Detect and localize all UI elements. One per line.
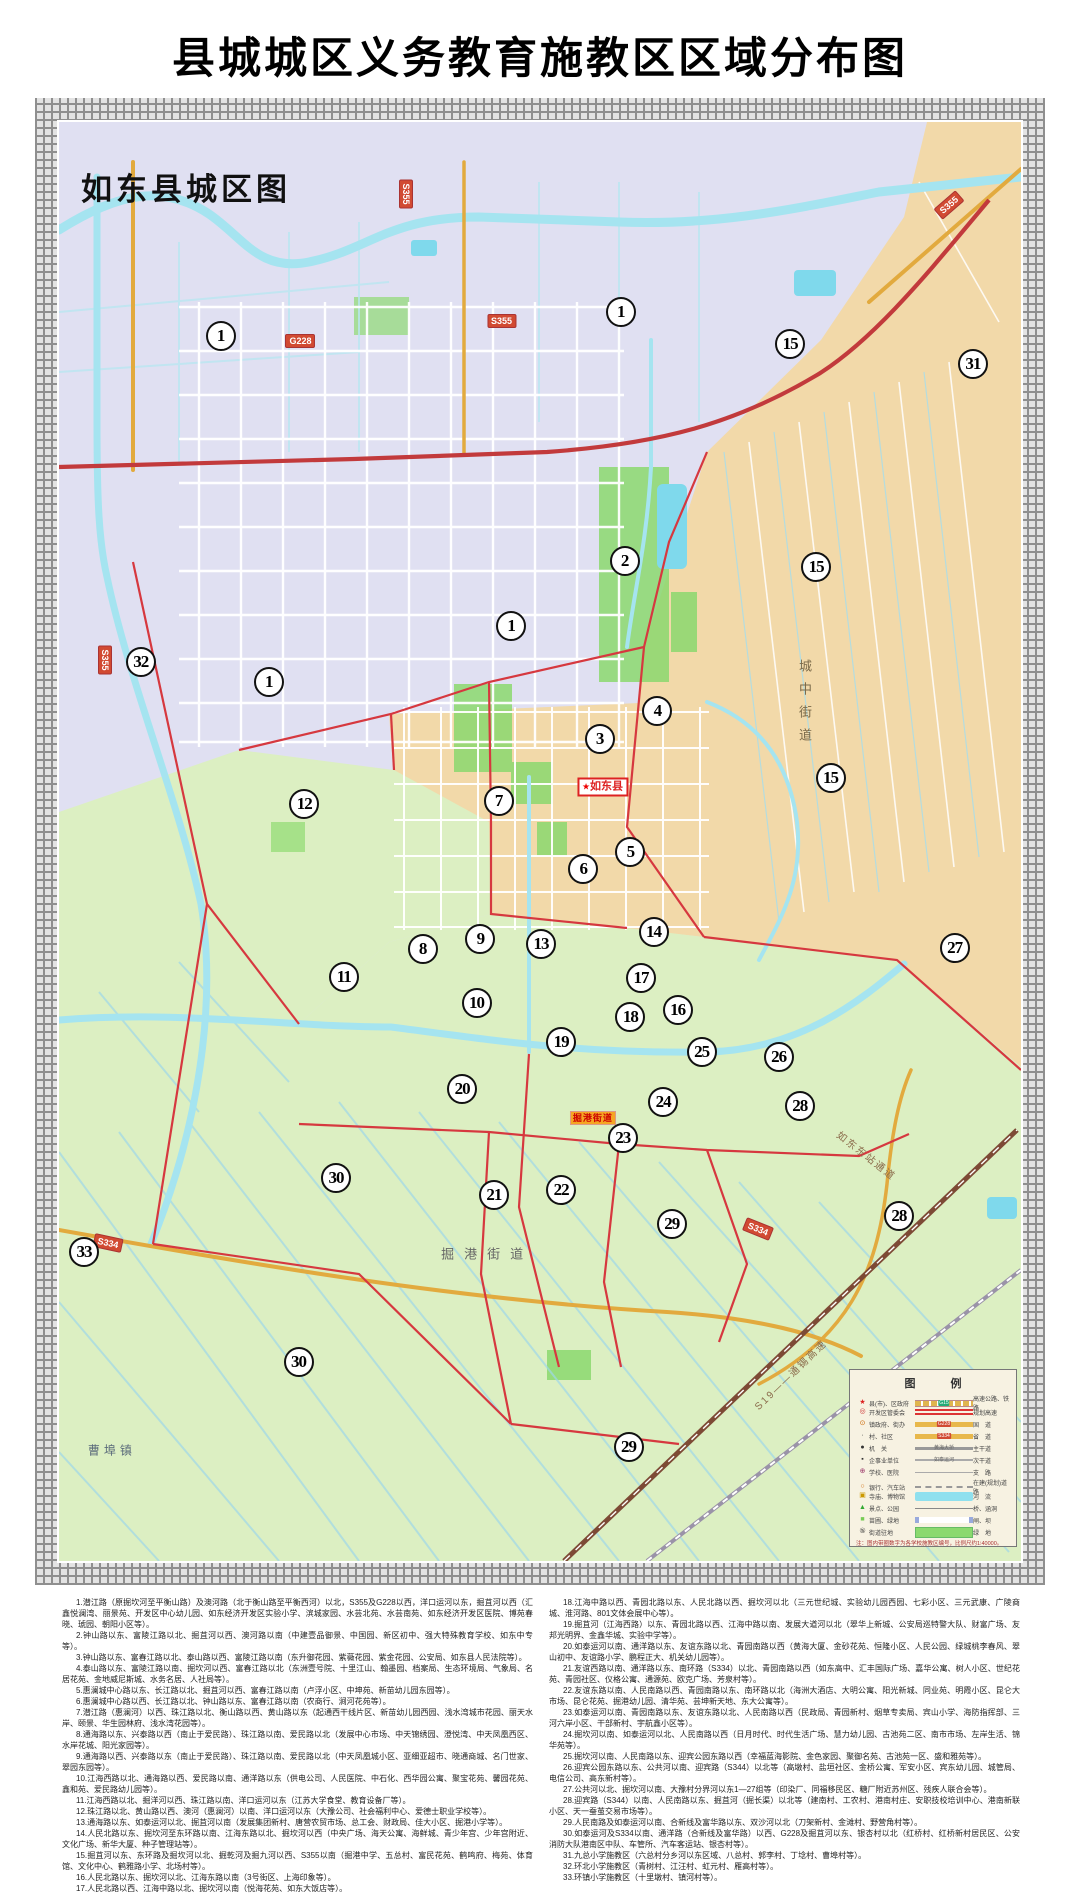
district-marker-7: 7 [484,786,514,816]
legend-label: 开发区管委会 [869,1408,915,1417]
district-note: 19.掘苴河（江海西路）以东、青园北路以西、江海中路以南、发展大道河以北（翠华上… [549,1619,1020,1641]
district-marker-20: 20 [447,1074,477,1104]
district-marker-2: 2 [610,546,640,576]
legend-line-sample: G228 [915,1420,973,1428]
legend-line-tag: 黄海大桥 [933,1445,955,1451]
county-seat-badge: ★如东县 [577,777,628,796]
legend-symbol-icon: ▣ [856,1492,869,1500]
district-note: 7.潜江路（惠澜河）以西、珠江路以北、衡山路以西、黄山路以东（起通西干线片区、新… [62,1707,533,1729]
district-marker-13: 13 [526,929,556,959]
legend-line-sample [915,1516,973,1524]
legend-line-sample: S334 [915,1432,973,1440]
legend-line-sample [915,1504,973,1512]
district-note: 12.珠江路以北、黄山路以西、澳河（惠澜河）以南、洋口运河以东（大豫公司、社会福… [62,1806,533,1817]
district-marker-18: 18 [615,1002,645,1032]
legend-line-sample [915,1528,973,1536]
legend-right-label: 省 道 [973,1432,1010,1441]
legend-right-label: 次干道 [973,1456,1010,1465]
district-marker-28: 28 [785,1091,815,1121]
district-note: 32.环北小学施教区（青树村、江汪村、虹元村、雁高村等）。 [549,1861,1020,1872]
legend-right-label: 主干道 [973,1444,1010,1453]
area-label-juegang-jiedao: 掘港街道 [441,1244,533,1263]
legend-line-tag: S334 [937,1433,951,1439]
district-marker-24: 24 [648,1087,678,1117]
legend-label: 县(市)、区政府 [869,1399,915,1408]
area-label-caobu-town: 曹埠镇 [88,1442,136,1459]
legend-right-label: 绿 地 [973,1528,1010,1537]
district-note: 13.通海路以东、如泰运河以北、掘苴河以南（发展集团新村、唐营农贸市场、总工会、… [62,1817,533,1828]
legend-label: 苗圃、绿地 [869,1516,915,1525]
district-marker-15: 15 [816,763,846,793]
legend-symbol-icon: ■ [856,1516,869,1524]
district-marker-26: 26 [764,1042,794,1072]
legend-right-label: 桥、涵洞 [973,1504,1010,1513]
district-note: 21.友谊西路以南、通洋路以东、南环路（S334）以北、青园南路以西（如东高中、… [549,1663,1020,1685]
legend-rows: ★县(市)、区政府G15高速公路、铁路◎开发区管委会规划高速⊙镇政府、街办G22… [856,1394,1010,1538]
legend-right-label: 河 流 [973,1492,1010,1501]
district-note: 33.环镇小学施教区（十里墩村、镇河村等）。 [549,1872,1020,1883]
district-note: 31.九总小学施教区（六总村分乡河以东区域、八总村、郭李村、丁埝村、曹埠村等）。 [549,1850,1020,1861]
district-note: 29.人民南路及如泰运河以南、合新线及富华路以东、双沙河以北（刀架新村、金滩村、… [549,1817,1020,1828]
legend-symbol-icon: ● [856,1444,869,1452]
legend-line [915,1472,973,1473]
district-note: 2.钟山路以东、富陵江路以北、掘苴河以西、澳河路以南（中建壹品御景、中国园、新区… [62,1630,533,1652]
district-marker-32: 32 [126,647,156,677]
district-note: 4.泰山路以东、富陵江路以南、掘坎河以西、富春江路以北（东洲壹号院、十里江山、翰… [62,1663,533,1685]
legend-line-tag: 如泰运河 [933,1457,955,1463]
legend-label: 寺庙、博物馆 [869,1492,915,1501]
legend-line [915,1508,973,1509]
legend-line [915,1486,973,1488]
district-marker-3: 3 [585,724,615,754]
district-note: 18.江海中路以西、青园北路以东、人民北路以西、掘坎河以北（三元世纪城、实验幼儿… [549,1597,1020,1619]
district-note: 22.友谊东路以南、人民南路以西、青园南路以东、南环路以北（海洲大酒店、大明公寓… [549,1685,1020,1707]
district-marker-1: 1 [206,321,236,351]
district-marker-6: 6 [568,854,598,884]
city-map: 如东县城区图 城中街道掘港街道曹埠镇如东东站通道S19——通锡高速掘港街道★如东… [59,122,1021,1561]
district-marker-30: 30 [284,1347,314,1377]
legend-note: 注：图内带圈数字为各学校施教区编号，比例尺约1∶40000。 [856,1541,1010,1548]
legend-label: 机 关 [869,1444,915,1453]
map-base-art [59,122,1021,1561]
district-note: 26.迎宾公园东路以东、公共河以南、迎宾路（S344）以北等（高墩村、盐垣社区、… [549,1762,1020,1784]
legend-row-8: ○银行、汽车站在建(规划)道路 [856,1478,1010,1490]
district-marker-5: 5 [615,837,645,867]
area-label-chengzhong-jiedao: 城中街道 [795,659,814,751]
district-note: 1.潜江路（原掘坎河至平衡山路）及澳河路（北于衡山路至平衡西河）以北，S355及… [62,1597,533,1630]
legend-row-1: ★县(市)、区政府G15高速公路、铁路 [856,1394,1010,1406]
road-badge-s355: S355 [98,646,112,675]
district-marker-11: 11 [329,962,359,992]
district-note: 30.如泰运河及S334以南、通洋路（合新线及富华路）以西、G228及掘苴河以东… [549,1828,1020,1850]
district-marker-29: 29 [657,1209,687,1239]
legend-row-11: ■苗圃、绿地闸、坝 [856,1514,1010,1526]
district-marker-30: 30 [321,1163,351,1193]
district-note: 28.迎宾路（S344）以南、人民南路以东、掘苴河（掘长渠）以北等（建南村、工农… [549,1795,1020,1817]
district-marker-25: 25 [687,1037,717,1067]
legend-label: 镇政府、街办 [869,1420,915,1429]
district-note: 24.掘坎河以南、如泰运河以北、人民南路以西（日月时代、时代生活广场、慧力幼儿园… [549,1729,1020,1751]
legend-label: 村、社区 [869,1432,915,1441]
map-frame: 如东县城区图 城中街道掘港街道曹埠镇如东东站通道S19——通锡高速掘港街道★如东… [35,98,1045,1585]
district-marker-9: 9 [465,924,495,954]
legend-row-3: ⊙镇政府、街办G228国 道 [856,1418,1010,1430]
legend-symbol-icon: ⊙ [856,1420,869,1428]
district-marker-27: 27 [940,933,970,963]
district-note: 23.如泰运河以南、青园南路以东、友谊东路以北、人民南路以西（民政局、青园新村、… [549,1707,1020,1729]
district-note: 11.江海西路以北、掘洋河以西、珠江路以南、洋口运河以东（江苏大学食堂、教育设备… [62,1795,533,1806]
legend-line [915,1527,973,1538]
district-note: 16.人民北路以东、掘坎河以北、江海东路以南（3号街区、上海印象等）。 [62,1872,533,1883]
legend-label: 企事业单位 [869,1456,915,1465]
legend-label: 学校、医院 [869,1468,915,1477]
district-note: 15.掘苴河以东、东环路及掘坎河以北、掘乾河及掘九河以西、S355以南（掘港中学… [62,1850,533,1872]
legend-label: 银行、汽车站 [869,1483,915,1492]
road-badge-s355: S355 [399,179,413,208]
district-note: 25.掘坎河以南、人民南路以东、迎宾公园东路以西（幸福蓝海影院、金色家园、聚御名… [549,1751,1020,1762]
county-star-icon: ★ [582,781,590,791]
legend-right-label: 国 道 [973,1420,1010,1429]
legend-symbol-icon: ★ [856,1399,869,1407]
legend-row-4: ·村、社区S334省 道 [856,1430,1010,1442]
legend-label: 街道驻地 [869,1528,915,1537]
legend-line [915,1409,973,1415]
district-marker-21: 21 [479,1180,509,1210]
district-marker-31: 31 [958,349,988,379]
legend-row-12: ⑤街道驻地绿 地 [856,1526,1010,1538]
legend-label: 景点、公园 [869,1504,915,1513]
legend-line-tag: G15 [938,1400,949,1406]
legend-symbol-icon: ▲ [856,1504,869,1512]
legend-row-9: ▣寺庙、博物馆河 流 [856,1490,1010,1502]
district-note: 8.通海路以东、兴泰路以西（南止于爱民路）、珠江路以南、爱民路以北（发展中心市场… [62,1729,533,1751]
district-marker-16: 16 [663,995,693,1025]
district-note: 17.人民北路以西、江海中路以北、掘坎河以南（悦海花苑、如东大饭店等）。 [62,1883,533,1894]
legend-right-label: 支 路 [973,1468,1010,1477]
district-marker-28: 28 [884,1201,914,1231]
district-marker-12: 12 [289,789,319,819]
district-note: 10.江海西路以北、通海路以西、爱民路以南、通洋路以东（供电公司、人民医院、中石… [62,1773,533,1795]
district-note: 5.惠澜城中心路以东、长江路以北、掘苴河以西、富春江路以南（卢浮小区、中坤苑、新… [62,1685,533,1696]
district-note: 6.惠澜城中心路以西、长江路以北、钟山路以东、富春江路以南（农商行、涧河花苑等）… [62,1696,533,1707]
district-marker-22: 22 [546,1175,576,1205]
legend-symbol-icon: ⑤ [856,1528,869,1536]
district-marker-29: 29 [614,1432,644,1462]
map-corner-title: 如东县城区图 [81,164,291,209]
legend-symbol-icon: ▪ [856,1456,869,1464]
legend-symbol-icon: ◎ [856,1408,869,1416]
district-marker-33: 33 [69,1237,99,1267]
district-marker-1: 1 [254,667,284,697]
legend-row-2: ◎开发区管委会规划高速 [856,1406,1010,1418]
legend-line-sample [915,1408,973,1416]
legend-title: 图 例 [856,1375,1010,1391]
page-title: 县城城区义务教育施教区区域分布图 [0,24,1080,86]
district-note: 14.人民北路以东、掘坎河至东环路以南、江海东路以北、掘坎河以西（中央广场、海天… [62,1828,533,1850]
legend-right-label: 闸、坝 [973,1516,1010,1525]
district-marker-19: 19 [546,1027,576,1057]
legend-row-10: ▲景点、公园桥、涵洞 [856,1502,1010,1514]
legend-symbol-icon: ○ [856,1483,869,1491]
legend-symbol-icon: ⊕ [856,1468,869,1476]
map-legend: 图 例 ★县(市)、区政府G15高速公路、铁路◎开发区管委会规划高速⊙镇政府、街… [849,1369,1017,1547]
district-note: 3.钟山路以东、富春江路以北、泰山路以西、富陵江路以南（东升御花园、紫薇花园、紫… [62,1652,533,1663]
district-marker-1: 1 [496,611,526,641]
legend-line [915,1517,973,1523]
legend-line-sample [915,1483,973,1491]
legend-line-sample [915,1492,973,1500]
road-badge-s355: S355 [487,314,516,328]
district-marker-1: 1 [606,297,636,327]
road-badge-g228: G228 [285,334,315,348]
district-note: 9.通海路以西、兴泰路以东（南止于爱民路）、珠江路以南、爱民路以北（中天凤凰城小… [62,1751,533,1773]
district-marker-15: 15 [801,552,831,582]
legend-row-6: ▪企事业单位如泰运河次干道 [856,1454,1010,1466]
district-descriptions-right: 18.江海中路以西、青园北路以东、人民北路以西、掘坎河以北（三元世纪城、实验幼儿… [549,1597,1020,1894]
legend-symbol-icon: · [856,1432,869,1440]
legend-right-label: 规划高速 [973,1408,1010,1417]
district-marker-15: 15 [775,329,805,359]
legend-line-sample: 黄海大桥 [915,1444,973,1452]
district-marker-4: 4 [642,696,672,726]
seat-badge-juegang-jiedao: 掘港街道 [570,1111,616,1125]
district-marker-10: 10 [462,988,492,1018]
district-marker-8: 8 [408,934,438,964]
legend-line [915,1492,973,1501]
legend-row-5: ●机 关黄海大桥主干道 [856,1442,1010,1454]
legend-line-sample: 如泰运河 [915,1456,973,1464]
district-marker-23: 23 [608,1123,638,1153]
district-note: 27.公共河以北、掘坎河以南、大豫村分界河以东1—27组等（印染厂、同福移民区、… [549,1784,1020,1795]
district-marker-17: 17 [626,963,656,993]
district-descriptions-left: 1.潜江路（原掘坎河至平衡山路）及澳河路（北于衡山路至平衡西河）以北，S355及… [62,1597,533,1894]
district-note: 20.如泰运河以南、通洋路以东、友谊东路以北、青园南路以西（黄海大厦、金砂花苑、… [549,1641,1020,1663]
district-descriptions: 1.潜江路（原掘坎河至平衡山路）及澳河路（北于衡山路至平衡西河）以北，S355及… [62,1597,1020,1894]
district-marker-14: 14 [639,917,669,947]
legend-row-7: ⊕学校、医院支 路 [856,1466,1010,1478]
legend-line-sample [915,1468,973,1476]
legend-line-tag: G228 [937,1421,951,1427]
legend-line-sample: G15 [915,1399,973,1407]
